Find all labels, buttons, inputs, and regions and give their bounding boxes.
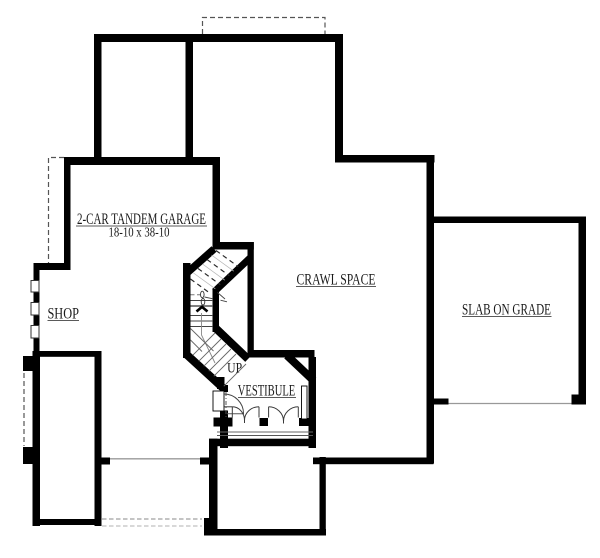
svg-text:SLAB ON GRADE: SLAB ON GRADE <box>462 302 551 319</box>
svg-text:VESTIBULE: VESTIBULE <box>238 383 296 400</box>
svg-text:CRAWL SPACE: CRAWL SPACE <box>297 272 376 289</box>
svg-text:UP: UP <box>227 360 242 376</box>
svg-text:18-10 x 38-10: 18-10 x 38-10 <box>109 226 170 241</box>
svg-text:SHOP: SHOP <box>47 306 79 323</box>
